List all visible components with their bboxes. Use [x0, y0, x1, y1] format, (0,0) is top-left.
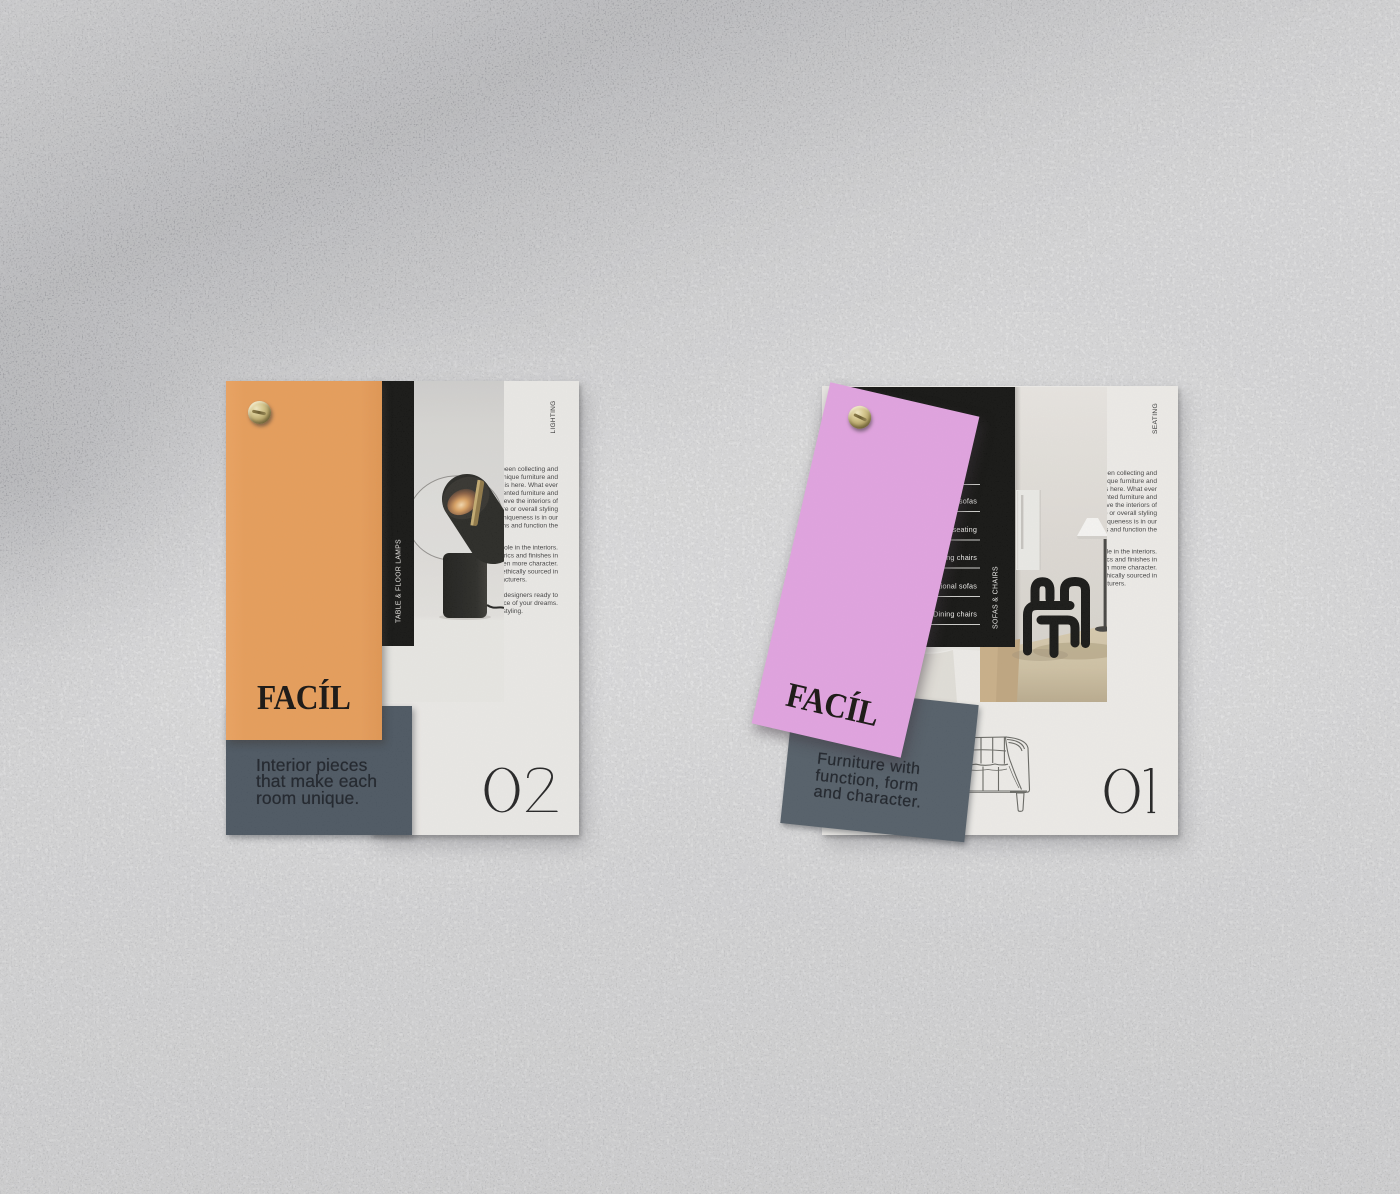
- svg-text:LIGHTING: LIGHTING: [550, 401, 557, 434]
- svg-text:TABLE & FLOOR LAMPS: TABLE & FLOOR LAMPS: [394, 539, 403, 623]
- svg-text:SOFAS & CHAIRS: SOFAS & CHAIRS: [991, 566, 1000, 629]
- svg-text:SEATING: SEATING: [1152, 403, 1159, 434]
